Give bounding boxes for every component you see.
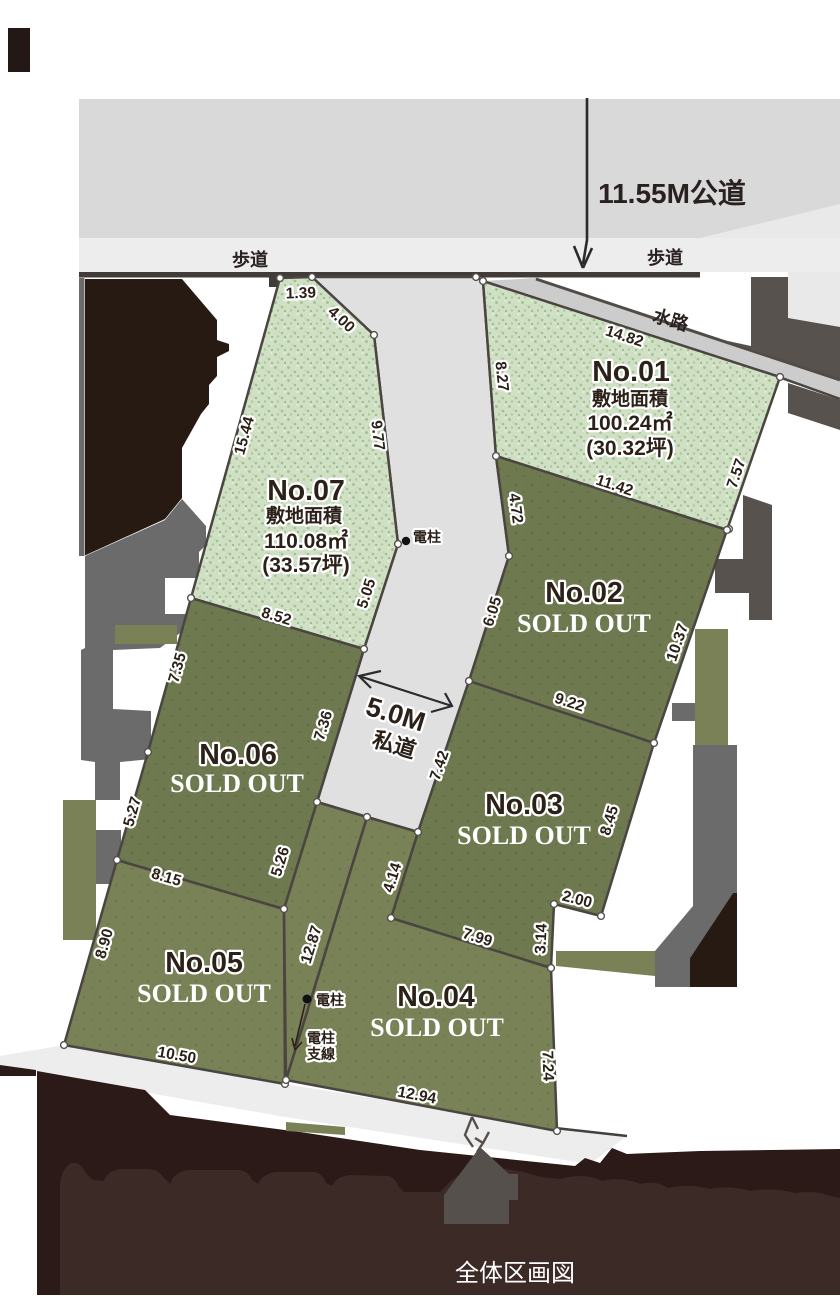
svg-text:電柱: 電柱 xyxy=(307,1030,335,1046)
svg-text:No.06: No.06 xyxy=(199,739,277,771)
svg-text:歩道: 歩道 xyxy=(232,249,268,270)
svg-text:No.05: No.05 xyxy=(165,947,243,979)
svg-text:SOLD OUT: SOLD OUT xyxy=(137,979,271,1008)
svg-text:電柱: 電柱 xyxy=(316,992,344,1008)
svg-text:8.27: 8.27 xyxy=(491,361,511,393)
svg-text:敷地面積: 敷地面積 xyxy=(592,387,668,410)
svg-text:支線: 支線 xyxy=(306,1046,335,1062)
svg-text:3.14: 3.14 xyxy=(532,923,550,954)
svg-text:No.03: No.03 xyxy=(485,789,563,821)
svg-text:SOLD OUT: SOLD OUT xyxy=(457,821,591,850)
svg-text:電柱: 電柱 xyxy=(413,529,441,545)
svg-text:No.02: No.02 xyxy=(545,577,623,609)
svg-text:(33.57坪): (33.57坪) xyxy=(262,554,350,577)
svg-text:歩道: 歩道 xyxy=(647,247,683,268)
svg-text:SOLD OUT: SOLD OUT xyxy=(370,1013,504,1042)
svg-text:SOLD OUT: SOLD OUT xyxy=(170,769,304,798)
svg-text:全体区画図: 全体区画図 xyxy=(455,1260,575,1287)
svg-text:No.07: No.07 xyxy=(267,475,345,507)
svg-text:7.24: 7.24 xyxy=(538,1050,556,1081)
svg-text:1.39: 1.39 xyxy=(286,285,317,303)
svg-text:11.55M公道: 11.55M公道 xyxy=(598,177,746,209)
svg-text:No.01: No.01 xyxy=(592,356,670,388)
svg-text:9.77: 9.77 xyxy=(367,420,387,452)
svg-text:No.04: No.04 xyxy=(397,981,475,1013)
svg-text:100.24㎡: 100.24㎡ xyxy=(587,411,672,435)
svg-text:(30.32坪): (30.32坪) xyxy=(586,437,674,460)
svg-text:敷地面積: 敷地面積 xyxy=(266,504,342,527)
svg-text:110.08㎡: 110.08㎡ xyxy=(264,529,348,553)
svg-text:SOLD OUT: SOLD OUT xyxy=(517,609,651,638)
